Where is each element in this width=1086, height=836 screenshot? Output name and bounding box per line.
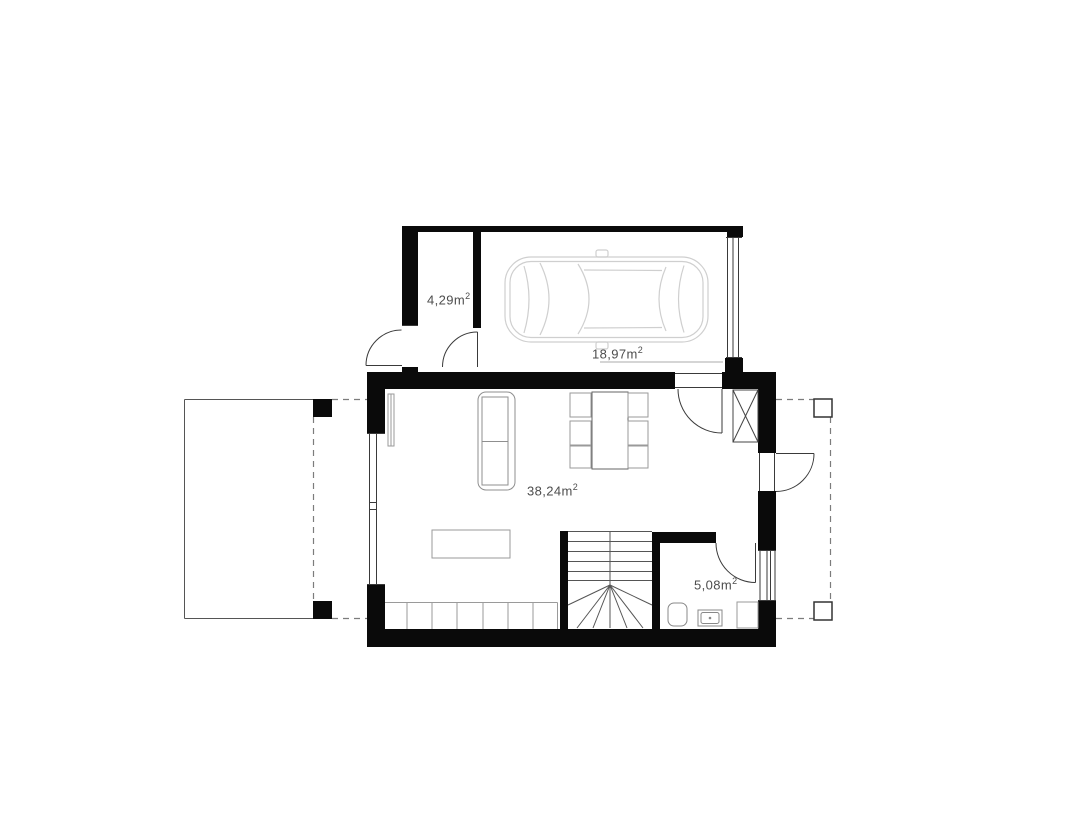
house-top-wall-left: [367, 372, 675, 389]
car-drawing: [505, 250, 708, 349]
floor-plan-drawing: [0, 0, 1086, 836]
chair: [570, 421, 591, 445]
kitchen-counter: [385, 603, 558, 630]
house-right-wall-lower: [758, 601, 776, 629]
terrace-pillar-top: [313, 399, 332, 417]
car-mirror-top: [596, 250, 608, 257]
car-body-inner: [510, 262, 703, 338]
area-label-living: 38,24m2: [527, 482, 578, 498]
dining-table: [592, 392, 628, 469]
bathroom-fixtures: [668, 602, 758, 628]
furniture: [385, 392, 648, 629]
chair: [570, 446, 591, 468]
vestibule-garage-partition-wall: [473, 232, 481, 328]
area-value: 4,29m: [427, 292, 465, 307]
porch-posts: [814, 399, 832, 620]
vestibule-exterior-door: [366, 330, 402, 366]
garage-door: [726, 238, 742, 358]
right-wall-window: [758, 551, 776, 601]
garage-to-house-door: [678, 389, 722, 433]
toilet: [668, 603, 687, 626]
radiator: [388, 394, 394, 446]
entrance-door: [776, 454, 814, 492]
area-label-bathroom: 5,08m2: [694, 576, 737, 592]
left-wall-window: [367, 434, 385, 585]
shower-tray: [737, 602, 758, 628]
house-bottom-wall: [367, 629, 776, 647]
stairwell-right-wall: [652, 532, 660, 629]
porch-post-bottom: [814, 602, 832, 620]
house-right-wall-upper: [758, 372, 776, 453]
house-right-wall-middle: [758, 491, 776, 550]
area-superscript: 2: [465, 291, 470, 301]
chair: [628, 446, 648, 468]
garage-left-wall: [402, 226, 418, 325]
area-label-garage: 18,97m2: [592, 345, 643, 361]
garage-bottom-right-block: [725, 358, 743, 373]
chair: [628, 393, 648, 417]
area-value: 5,08m: [694, 577, 732, 592]
chair: [570, 393, 591, 417]
chair: [628, 421, 648, 445]
garage-top-right-block: [727, 226, 743, 237]
car-hood-line: [540, 263, 549, 335]
sofa: [478, 392, 515, 490]
area-superscript: 2: [732, 576, 737, 586]
garage-top-wall: [402, 226, 743, 232]
stairwell-left-wall: [560, 531, 568, 629]
floor-plan-canvas: 4,29m2 18,97m2 38,24m2 5,08m2: [0, 0, 1086, 836]
chimney-shaft: [733, 390, 758, 442]
coffee-table: [432, 530, 510, 558]
car-roof-line: [584, 328, 662, 329]
area-value: 18,97m: [592, 346, 638, 361]
vestibule-garage-door: [443, 332, 478, 367]
terrace-pillar-bottom: [313, 601, 332, 619]
car-roof-line: [584, 270, 662, 271]
staircase: [568, 532, 652, 629]
car-rear-window: [659, 267, 666, 331]
terrace-outline: [185, 400, 314, 619]
area-label-vestibule: 4,29m2: [427, 291, 470, 307]
area-value: 38,24m: [527, 483, 573, 498]
car-windshield: [578, 264, 589, 334]
area-superscript: 2: [573, 482, 578, 492]
porch-post-top: [814, 399, 832, 417]
house-left-wall-upper: [367, 372, 385, 433]
area-superscript: 2: [638, 345, 643, 355]
car-trunk-line: [679, 266, 685, 333]
sink: [698, 610, 722, 626]
bathroom-top-wall: [652, 532, 716, 543]
stair-winder-fan: [568, 585, 652, 628]
car-front-edge: [524, 266, 529, 333]
